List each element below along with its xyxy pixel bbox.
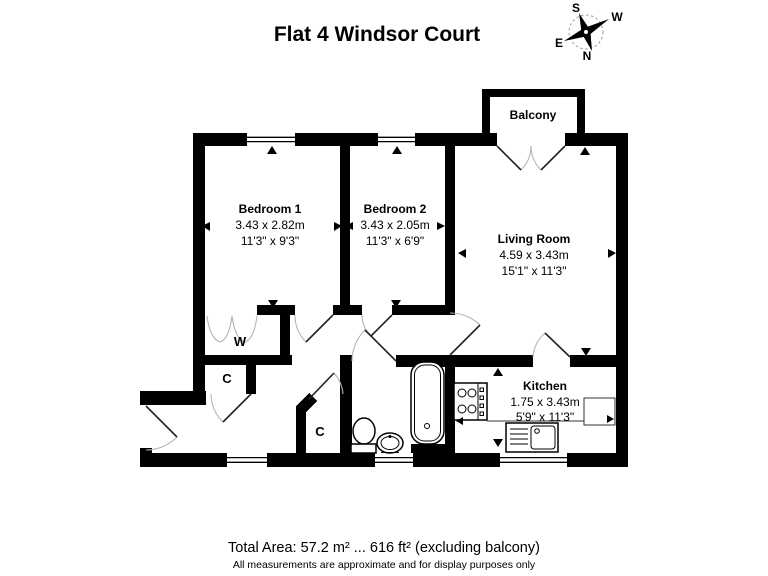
doors — [146, 146, 570, 450]
living-room-door — [450, 313, 480, 355]
room-dim-imperial: 15'1" x 11'3" — [502, 264, 567, 278]
balcony-label: Balcony — [510, 108, 557, 122]
wall-segment — [616, 133, 628, 467]
sink-drainer-icon — [506, 423, 558, 452]
bathroom-door — [352, 330, 396, 361]
bath-icon — [411, 362, 444, 444]
wall-segment — [482, 89, 585, 97]
window — [247, 133, 295, 146]
cupboard-hall-door — [211, 394, 251, 422]
toilet-icon — [351, 418, 376, 453]
room-dim-imperial: 11'3" x 9'3" — [241, 234, 299, 248]
page-title: Flat 4 Windsor Court — [274, 23, 480, 46]
balcony-opening — [497, 133, 565, 146]
room-dim-metric: 1.75 x 3.43m — [510, 395, 579, 409]
floorplan-page: Flat 4 Windsor Court S W E N Balcony — [0, 0, 768, 576]
wall-segment — [257, 305, 295, 315]
room-name: Bedroom 1 — [239, 202, 302, 216]
wall-segment — [333, 305, 362, 315]
wall-segment — [193, 355, 292, 365]
wall-segment — [340, 355, 352, 453]
room-name: Bedroom 2 — [364, 202, 427, 216]
bedroom1-door — [295, 315, 333, 342]
wardrobe-label: W — [234, 334, 247, 349]
dimension-arrow — [607, 415, 614, 423]
window — [375, 453, 413, 467]
room-name: Kitchen — [523, 379, 567, 393]
dimension-arrow — [493, 439, 503, 447]
entrance-door — [146, 406, 177, 450]
hob-icon — [454, 383, 487, 420]
room-dim-metric: 3.43 x 2.82m — [235, 218, 304, 232]
room-bedroom2: Bedroom 2 3.43 x 2.05m 11'3" x 6'9" — [360, 202, 429, 248]
dimension-arrow — [493, 368, 503, 376]
cupboard-bath-label: C — [315, 424, 325, 439]
wall-segment — [340, 146, 350, 315]
room-living: Living Room 4.59 x 3.43m 15'1" x 11'3" — [498, 232, 571, 278]
dimension-arrow — [458, 249, 466, 258]
kitchen-door — [533, 333, 570, 357]
room-dim-imperial: 5'9" x 11'3" — [516, 410, 574, 424]
total-area-text: Total Area: 57.2 m² ... 616 ft² (excludi… — [228, 540, 540, 556]
bedroom2-door — [362, 315, 392, 336]
dimension-arrow — [392, 146, 402, 154]
compass-east-label: E — [555, 36, 563, 50]
dimension-arrow — [581, 348, 591, 356]
floor-plan: Flat 4 Windsor Court S W E N Balcony — [0, 0, 768, 576]
window — [500, 453, 567, 467]
disclaimer-text: All measurements are approximate and for… — [233, 559, 536, 571]
window — [227, 453, 267, 467]
room-bedroom1: Bedroom 1 3.43 x 2.82m 11'3" x 9'3" — [235, 202, 304, 248]
wash-basin-icon — [377, 433, 403, 453]
wall-segment — [445, 146, 455, 313]
room-dim-imperial: 11'3" x 6'9" — [366, 234, 424, 248]
room-kitchen: Kitchen 1.75 x 3.43m 5'9" x 11'3" — [510, 379, 579, 424]
cupboard-hall-label: C — [222, 371, 232, 386]
compass-hub — [584, 30, 589, 35]
window — [378, 133, 415, 146]
balcony-french-doors — [497, 146, 565, 170]
wall-segment — [392, 305, 455, 315]
dimension-arrow — [437, 222, 445, 230]
compass-north-label: N — [583, 49, 592, 63]
wall-segment — [411, 444, 445, 453]
wardrobe-bifold-doors — [207, 316, 257, 342]
compass-west-label: W — [611, 10, 623, 24]
room-name: Living Room — [498, 232, 571, 246]
room-dim-metric: 4.59 x 3.43m — [499, 248, 568, 262]
wall-segment — [570, 355, 616, 367]
cupboard-bath-door — [309, 373, 343, 399]
room-dim-metric: 3.43 x 2.05m — [360, 218, 429, 232]
dimension-arrow — [608, 249, 616, 258]
wall-segment — [140, 391, 206, 405]
compass-south-label: S — [572, 1, 580, 15]
dimension-arrow — [580, 147, 590, 155]
compass-rose-icon: S W E N — [555, 1, 623, 63]
wall-segment — [246, 365, 256, 394]
dimension-arrow — [267, 146, 277, 154]
